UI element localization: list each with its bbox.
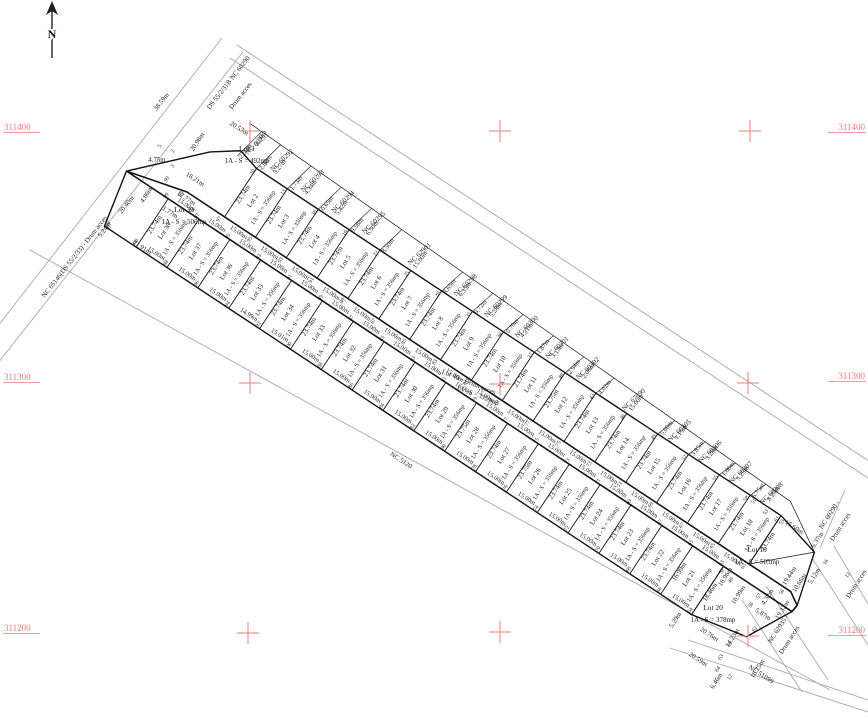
dimension-label: 2.06m	[581, 363, 597, 380]
boundary-point-number: 56	[778, 588, 786, 596]
dimension-label: 1.15m	[673, 424, 689, 441]
boundary-point-number: 5	[157, 143, 164, 149]
dimension-label: 4.21m	[519, 322, 535, 339]
boundary-point-number: 71	[594, 478, 602, 486]
boundary-point-number: 77	[502, 416, 510, 424]
lot-area: 1A - S = 492mp	[225, 157, 270, 165]
boundary-point-number: 94	[224, 300, 232, 308]
boundary-point-number: 53	[762, 508, 770, 516]
boundary-point-number: 98	[162, 259, 170, 267]
lot-area: 1A - S = 378mp	[691, 616, 736, 624]
boundary-point-number: 68	[625, 566, 633, 574]
lot-name: Lot 7	[401, 295, 415, 311]
boundary-point-number: 12	[844, 571, 852, 579]
boundary-point-number: 73	[564, 457, 572, 465]
access-road-line	[230, 58, 868, 536]
boundary-point-number: 83	[409, 355, 417, 363]
boundary-point-number: 62	[751, 625, 759, 633]
boundary-point-number: 63	[717, 653, 725, 661]
top-road-label-2: Drum acces	[228, 81, 254, 111]
boundary-point-number: 84	[378, 402, 386, 410]
dimension-label: 16.99m	[730, 584, 747, 606]
boundary-point-number: 2	[170, 148, 177, 154]
boundary-point-number: 74	[532, 504, 540, 512]
boundary-point-number: 82	[409, 423, 417, 431]
boundary-point-number: 87	[348, 314, 356, 322]
cadastral-plan-svg: NC 602912.30mNC 6029212.80m3.27mNC 60293…	[0, 0, 868, 720]
dimension-label: 14.02m	[595, 379, 613, 399]
boundary-point-number: 99	[163, 175, 171, 183]
lot-name: Lot 5	[339, 254, 353, 270]
dimension-label: 20.76m	[698, 626, 720, 643]
boundary-point-number: 51	[750, 497, 758, 505]
boundary-point-number: 3	[170, 163, 177, 169]
cadastral-plan-page: NC 602912.30mNC 6029212.80m3.27mNC 60293…	[0, 0, 868, 720]
lot-name: Lot 2	[246, 193, 260, 209]
boundary-point-number: 91	[286, 273, 294, 281]
lot-name: Lot 8	[431, 315, 445, 331]
boundary-point-number: 65	[687, 539, 695, 547]
dimension-label: 3.13m	[550, 342, 566, 359]
boundary-point-number: 86	[347, 382, 355, 390]
dimension-label: 3.28m	[704, 444, 720, 461]
boundary-point-number: 99	[162, 192, 170, 200]
boundary-point-number: 93	[255, 253, 263, 261]
boundary-point-number: 88	[316, 361, 324, 369]
boundary-point-number: 92	[255, 320, 263, 328]
lot-name: Lot 9	[462, 335, 476, 351]
boundary-point-number: 76	[502, 484, 510, 492]
grid-coordinate-label: 311200	[838, 625, 865, 635]
boundary-point-number: 72	[563, 525, 571, 533]
grid-coordinate-label: 311200	[4, 623, 31, 633]
lot-name: Lot 20	[703, 603, 723, 612]
boundary-point-number: 64	[687, 606, 695, 614]
dimension-label: 6.46m	[709, 671, 725, 690]
lot-name: Lot 1	[239, 144, 255, 153]
boundary-point-number: 12	[726, 673, 734, 681]
grid-coordinate-label: 311400	[4, 122, 31, 132]
dimension-label: 5.87m	[754, 607, 773, 623]
dimension-label: 6.35m	[457, 281, 473, 298]
grid-coordinate-label: 311300	[4, 372, 31, 382]
dimension-label: 5.29m	[668, 610, 684, 629]
dimension-label: 5.25m	[735, 465, 751, 482]
boundary-point-number: 16	[822, 558, 830, 566]
parcel-labels-layer: NC 602912.30mNC 6029212.80m3.27mNC 60293…	[41, 55, 868, 691]
boundary-point-number: 96	[193, 280, 201, 288]
dimension-label: 20.40m	[118, 194, 137, 215]
boundary-point-number: 85	[378, 335, 386, 343]
dimension-label: 18.21m	[184, 171, 206, 188]
boundary-point-number: 67	[656, 518, 664, 526]
dimension-label: 8.50m	[380, 237, 396, 254]
top-road-label: DS 55/2/31B NC 60290	[206, 55, 252, 111]
dimension-label: 20.59m	[687, 651, 709, 668]
boundary-point-number: 89	[317, 294, 325, 302]
lot-name: Lot 3	[277, 213, 291, 229]
neighbor-zone-line	[249, 123, 790, 501]
boundary-point-number: 95	[224, 232, 232, 240]
boundary-point-number: 90	[286, 341, 294, 349]
boundary-point-number: 75	[533, 437, 541, 445]
grid-coordinate-label: 311300	[838, 371, 865, 381]
boundary-point-number: 80	[440, 443, 448, 451]
boundary-point-number: 78	[471, 463, 479, 471]
dimension-label: 38.59m	[153, 91, 172, 112]
lot-name: Lot 4	[308, 233, 322, 249]
dimension-label: 15.60m	[783, 519, 805, 536]
dimension-label: 20.98m	[189, 131, 206, 153]
grid-coordinate-label: 311400	[838, 122, 865, 132]
dimension-label: 23.74m	[759, 531, 777, 553]
north-label: N	[48, 27, 57, 41]
dimension-label: 20.57m	[228, 120, 250, 137]
boundary-point-number: 66	[656, 586, 664, 594]
boundary-point-number: 63	[718, 559, 726, 567]
boundary-point-number: 69	[625, 498, 633, 506]
boundary-point-number: 58	[747, 601, 755, 609]
boundary-point-number: 70	[594, 545, 602, 553]
lot-name: Lot 6	[370, 274, 384, 290]
north-arrow: N	[46, 1, 58, 58]
dimension-label: 4.75m	[148, 157, 166, 164]
dimension-label: 5.28m	[488, 301, 504, 318]
